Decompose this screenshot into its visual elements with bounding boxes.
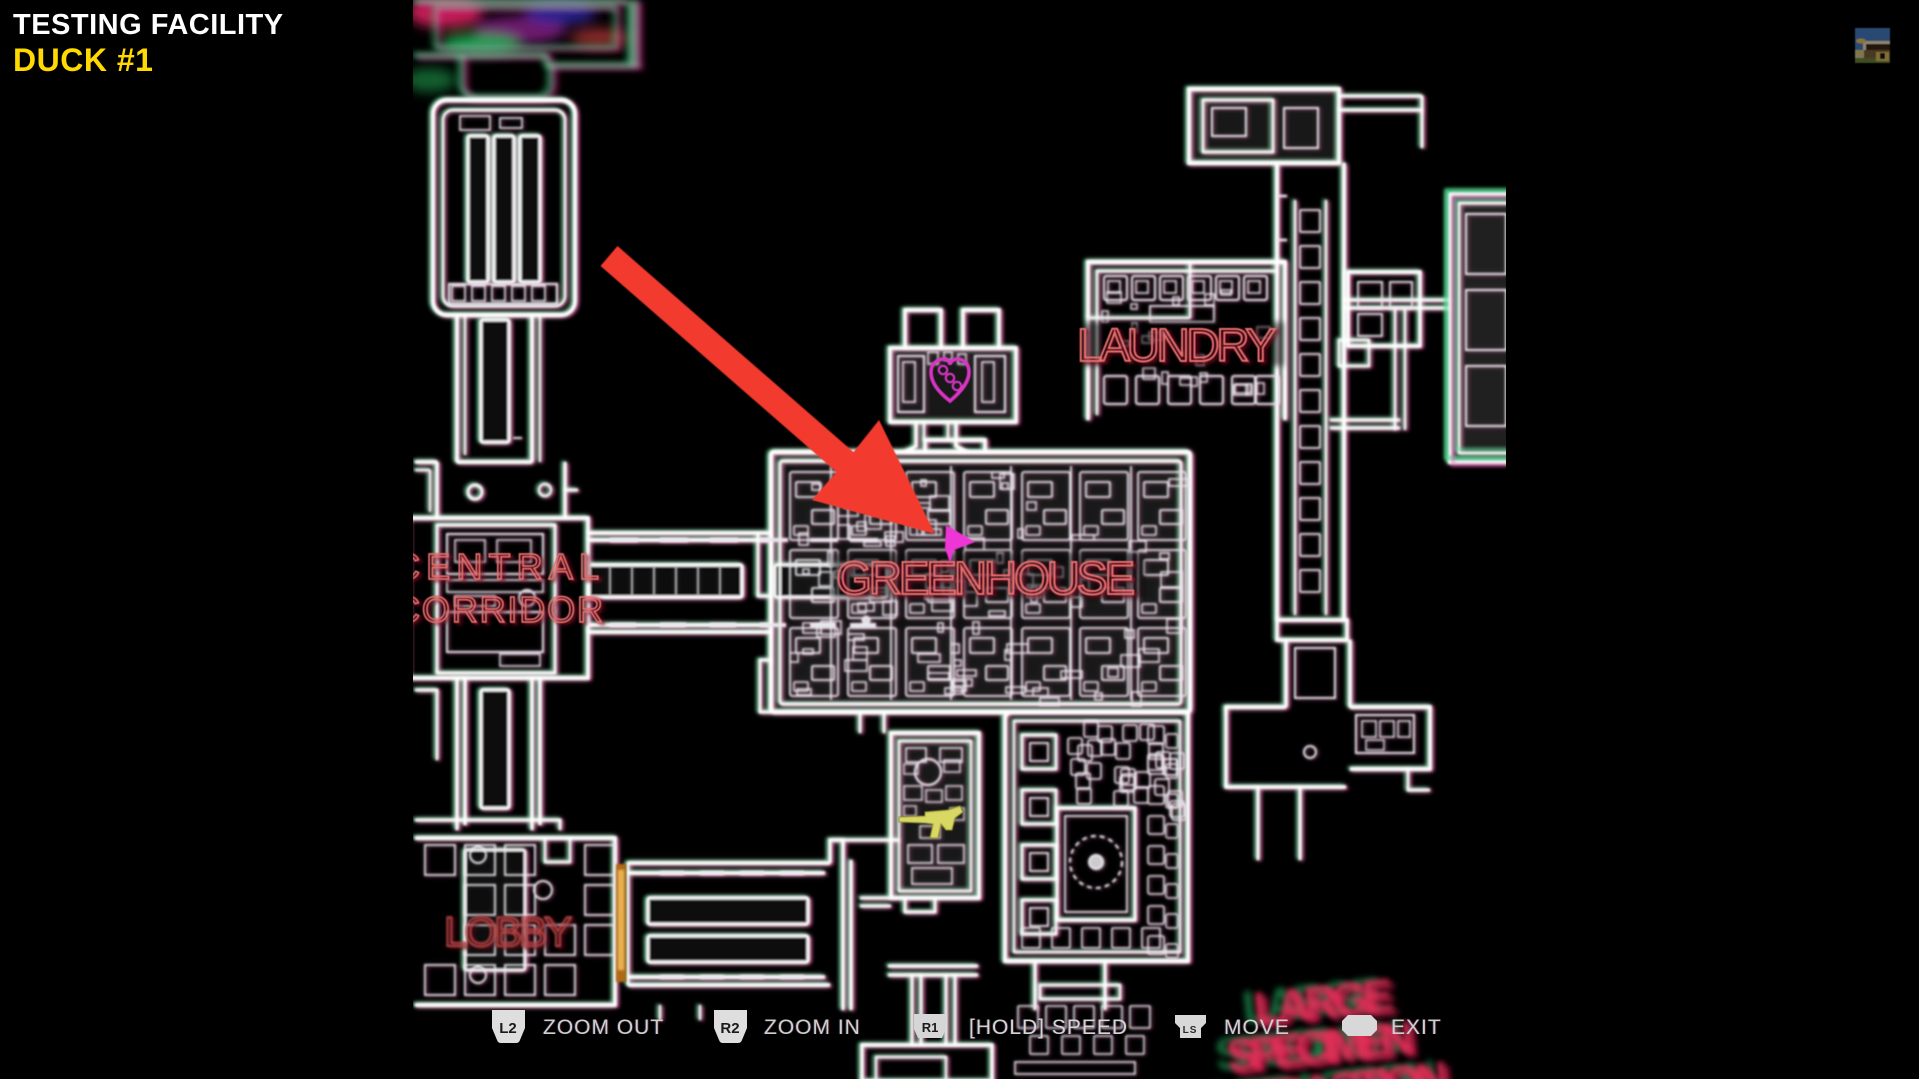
svg-text:LS: LS [1183, 1025, 1198, 1036]
svg-text:R1: R1 [922, 1020, 939, 1035]
svg-text:L2: L2 [499, 1020, 517, 1037]
svg-text:R2: R2 [720, 1020, 739, 1037]
